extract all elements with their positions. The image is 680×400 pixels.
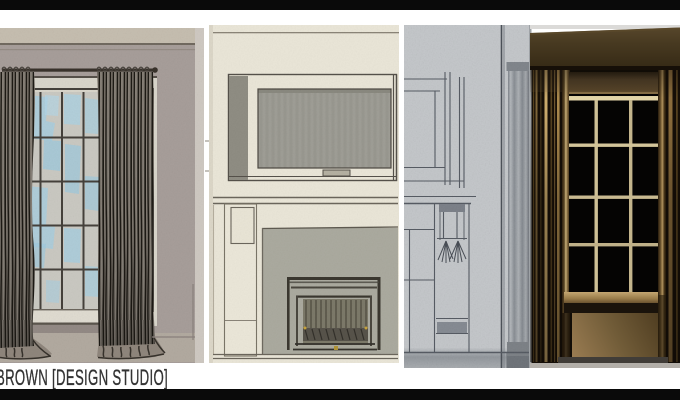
- svg-text:BROWN [DESIGN STUDIO]: BROWN [DESIGN STUDIO]: [0, 365, 168, 390]
